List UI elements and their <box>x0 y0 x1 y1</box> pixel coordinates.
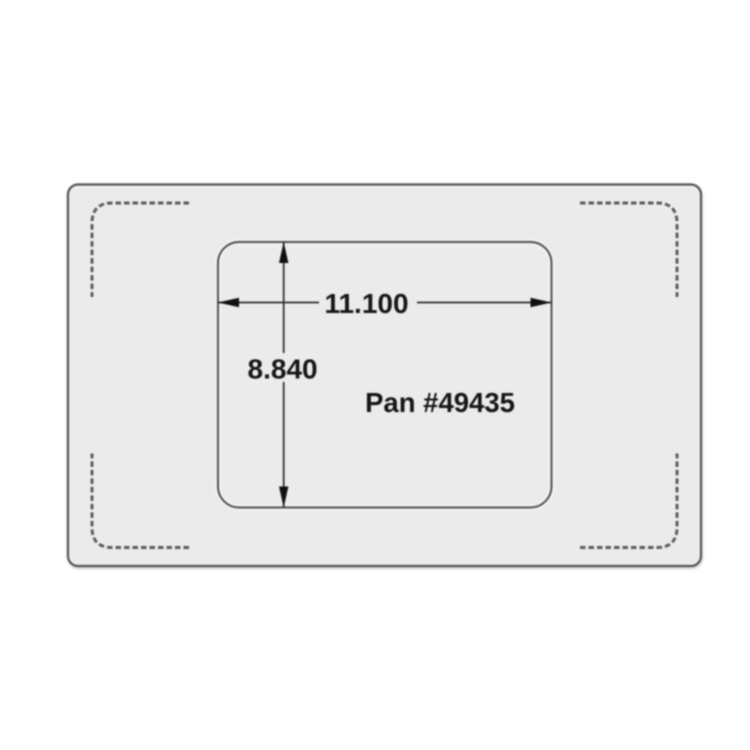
svg-text:11.100: 11.100 <box>324 288 408 319</box>
svg-text:8.840: 8.840 <box>248 354 318 385</box>
svg-text:Pan #49435: Pan #49435 <box>365 387 515 418</box>
